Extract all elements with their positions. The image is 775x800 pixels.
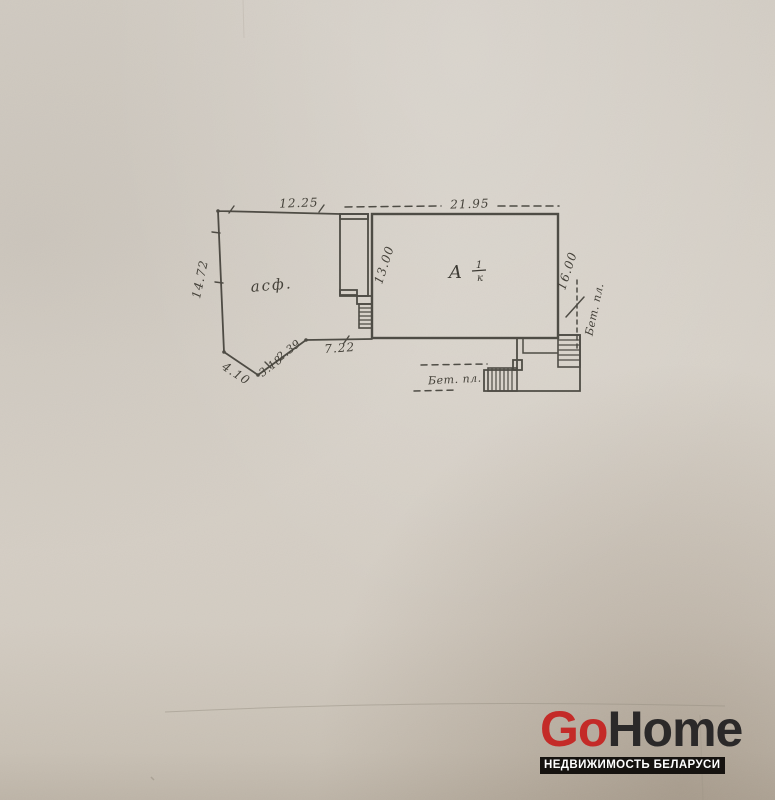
site-plan-drawing: 12.25 21.95 14.72 13.00 16.00 4.10 3.18 … <box>0 0 775 800</box>
gohome-logo: GoHome <box>540 703 775 755</box>
dim-bottom-run: 7.22 <box>324 340 356 356</box>
building-fraction-denominator: к <box>477 273 483 284</box>
gohome-watermark: GoHome НЕДВИЖИМОСТЬ БЕЛАРУСИ <box>540 703 775 774</box>
brand-home: Home <box>607 701 742 757</box>
building-fraction-numerator: 1 <box>476 260 482 271</box>
building-letter: А <box>447 262 464 283</box>
dim-top-main: 21.95 <box>449 196 490 211</box>
annex-stairs <box>359 304 372 328</box>
yard-label: асф. <box>250 274 293 296</box>
paper-grain-texture <box>0 0 775 800</box>
gohome-tagline: НЕДВИЖИМОСТЬ БЕЛАРУСИ <box>540 757 725 774</box>
dim-top-left: 12.25 <box>279 195 319 210</box>
scanned-plan-page: 12.25 21.95 14.72 13.00 16.00 4.10 3.18 … <box>0 0 775 800</box>
brand-go: Go <box>540 701 607 757</box>
